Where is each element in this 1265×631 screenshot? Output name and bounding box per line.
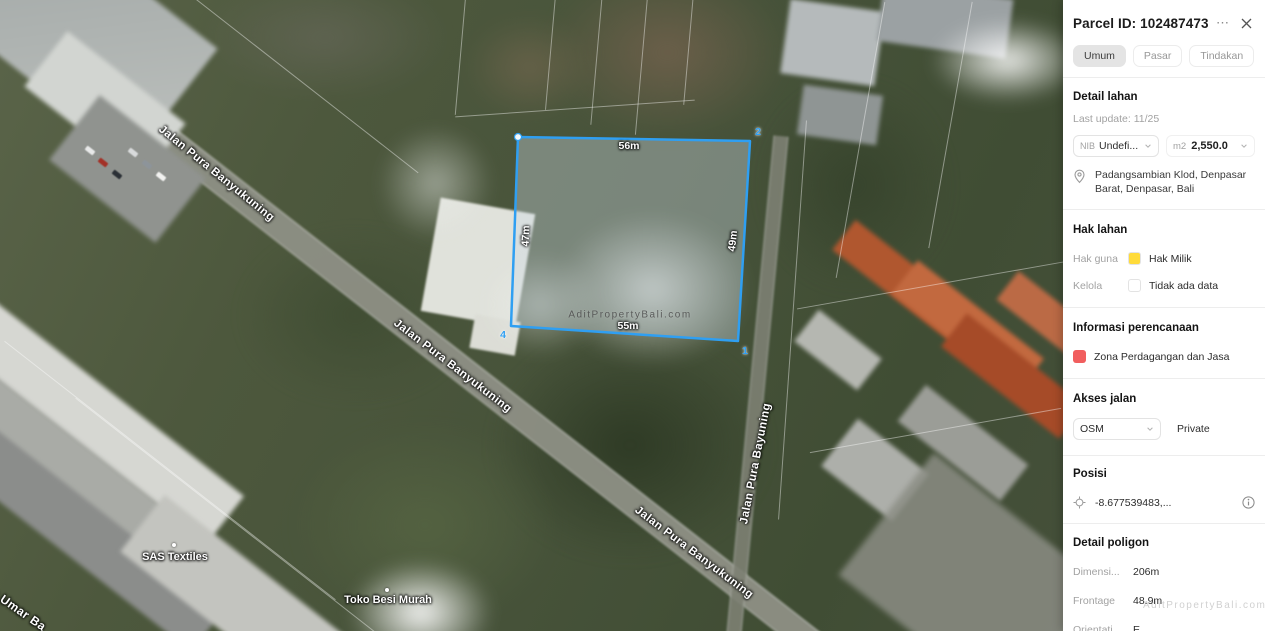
nib-prefix-label: NIB — [1080, 141, 1095, 151]
watermark: AditPropertyBali.com — [568, 310, 691, 321]
orientation-value: E — [1133, 624, 1140, 631]
parcel-detail-panel: Parcel ID: 102487473 ⋯ Umum Pasar Tindak… — [1063, 0, 1265, 631]
poi-dot — [172, 543, 176, 547]
nib-value: Undefi... — [1099, 140, 1140, 152]
section-heading: Posisi — [1073, 468, 1255, 480]
divider — [1063, 523, 1265, 524]
tab-pasar[interactable]: Pasar — [1133, 45, 1182, 67]
info-icon[interactable] — [1242, 496, 1255, 509]
parcel-edge-length-top: 56m — [618, 140, 639, 152]
parcel-vertex-handle[interactable] — [515, 134, 522, 141]
section-heading: Hak lahan — [1073, 224, 1255, 236]
section-heading: Akses jalan — [1073, 393, 1255, 405]
last-update-text: Last update: 11/25 — [1073, 113, 1255, 125]
area-unit-label: m2 — [1173, 141, 1186, 152]
chevron-down-icon — [1146, 425, 1154, 433]
hak-guna-value: Hak Milik — [1149, 253, 1192, 265]
dimensi-label: Dimensi... — [1073, 566, 1133, 578]
parcel-corner-1[interactable]: 1 — [742, 345, 748, 357]
section-heading: Detail poligon — [1073, 537, 1255, 549]
parcel-edge-length-right: 49m — [726, 230, 740, 252]
zone-label: Zona Perdagangan dan Jasa — [1094, 351, 1229, 363]
app-window: Jalan Pura Banyukuning Jalan Pura Banyuk… — [0, 0, 1265, 631]
divider — [1063, 77, 1265, 78]
road-source-select[interactable]: OSM — [1073, 418, 1161, 440]
divider — [1063, 378, 1265, 379]
kelola-value: Tidak ada data — [1149, 280, 1218, 292]
divider — [1063, 455, 1265, 456]
panel-title: Parcel ID: 102487473 — [1073, 16, 1214, 31]
section-informasi-perencanaan: Informasi perencanaan Zona Perdagangan d… — [1063, 322, 1265, 363]
tab-bar: Umum Pasar Tindakan — [1063, 39, 1265, 77]
parcel-corner-4[interactable]: 4 — [500, 329, 506, 341]
poi-dot — [385, 588, 389, 592]
position-crosshair-icon — [1073, 496, 1086, 509]
hak-guna-swatch — [1128, 252, 1141, 265]
close-button[interactable] — [1238, 15, 1255, 32]
section-detail-lahan: Detail lahan Last update: 11/25 NIB Unde… — [1063, 91, 1265, 196]
frontage-label: Frontage — [1073, 595, 1133, 607]
poi-label-toko-besi-murah: Toko Besi Murah — [344, 594, 432, 606]
more-options-button[interactable]: ⋯ — [1214, 13, 1232, 33]
parcel-corner-2[interactable]: 2 — [755, 126, 761, 138]
chevron-down-icon — [1240, 142, 1248, 150]
tab-tindakan[interactable]: Tindakan — [1189, 45, 1254, 67]
area-select[interactable]: m2 2,550.0 — [1166, 135, 1255, 157]
tab-umum[interactable]: Umum — [1073, 45, 1126, 67]
map-canvas[interactable]: Jalan Pura Banyukuning Jalan Pura Banyuk… — [0, 0, 1063, 631]
orientation-label: Orientati... — [1073, 624, 1133, 631]
dimensi-value: 206m — [1133, 566, 1159, 578]
hak-guna-label: Hak guna — [1073, 253, 1128, 265]
section-detail-poligon: Detail poligon Dimensi... 206m Frontage … — [1063, 537, 1265, 631]
kelola-swatch — [1128, 279, 1141, 292]
section-akses-jalan: Akses jalan OSM Private — [1063, 393, 1265, 440]
parcel-overlay — [0, 0, 1063, 631]
kelola-label: Kelola — [1073, 280, 1128, 292]
road-access-value: Private — [1177, 423, 1210, 435]
parcel-address: Padangsambian Klod, Denpasar Barat, Denp… — [1095, 168, 1255, 196]
poi-label-sas-textiles: SAS Textiles — [142, 551, 208, 563]
frontage-value: 48.9m — [1133, 595, 1162, 607]
nib-select[interactable]: NIB Undefi... — [1073, 135, 1159, 157]
section-heading: Detail lahan — [1073, 91, 1255, 103]
section-heading: Informasi perencanaan — [1073, 322, 1255, 334]
section-hak-lahan: Hak lahan Hak guna Hak Milik Kelola Tida… — [1063, 224, 1265, 292]
chevron-down-icon — [1144, 142, 1152, 150]
close-icon — [1240, 17, 1253, 30]
road-source-value: OSM — [1080, 423, 1142, 435]
parcel-edge-length-left: 47m — [520, 225, 533, 246]
section-posisi: Posisi -8.677539483,... — [1063, 468, 1265, 509]
divider — [1063, 209, 1265, 210]
panel-header: Parcel ID: 102487473 ⋯ — [1063, 0, 1265, 39]
coordinates-value: -8.677539483,... — [1095, 497, 1242, 509]
area-value: 2,550.0 — [1191, 140, 1236, 152]
parcel-edge-length-bottom: 55m — [617, 320, 638, 332]
divider — [1063, 307, 1265, 308]
location-pin-icon — [1073, 169, 1086, 184]
zone-swatch — [1073, 350, 1086, 363]
